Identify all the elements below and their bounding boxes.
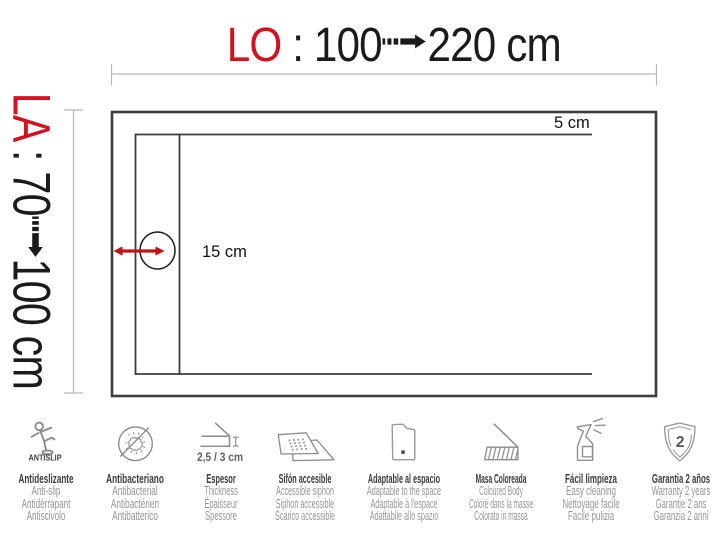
svg-text:2,5 / 3 cm: 2,5 / 3 cm — [197, 452, 243, 464]
svg-text:2: 2 — [676, 434, 685, 451]
svg-text:ANTISLIP: ANTISLIP — [29, 453, 62, 463]
